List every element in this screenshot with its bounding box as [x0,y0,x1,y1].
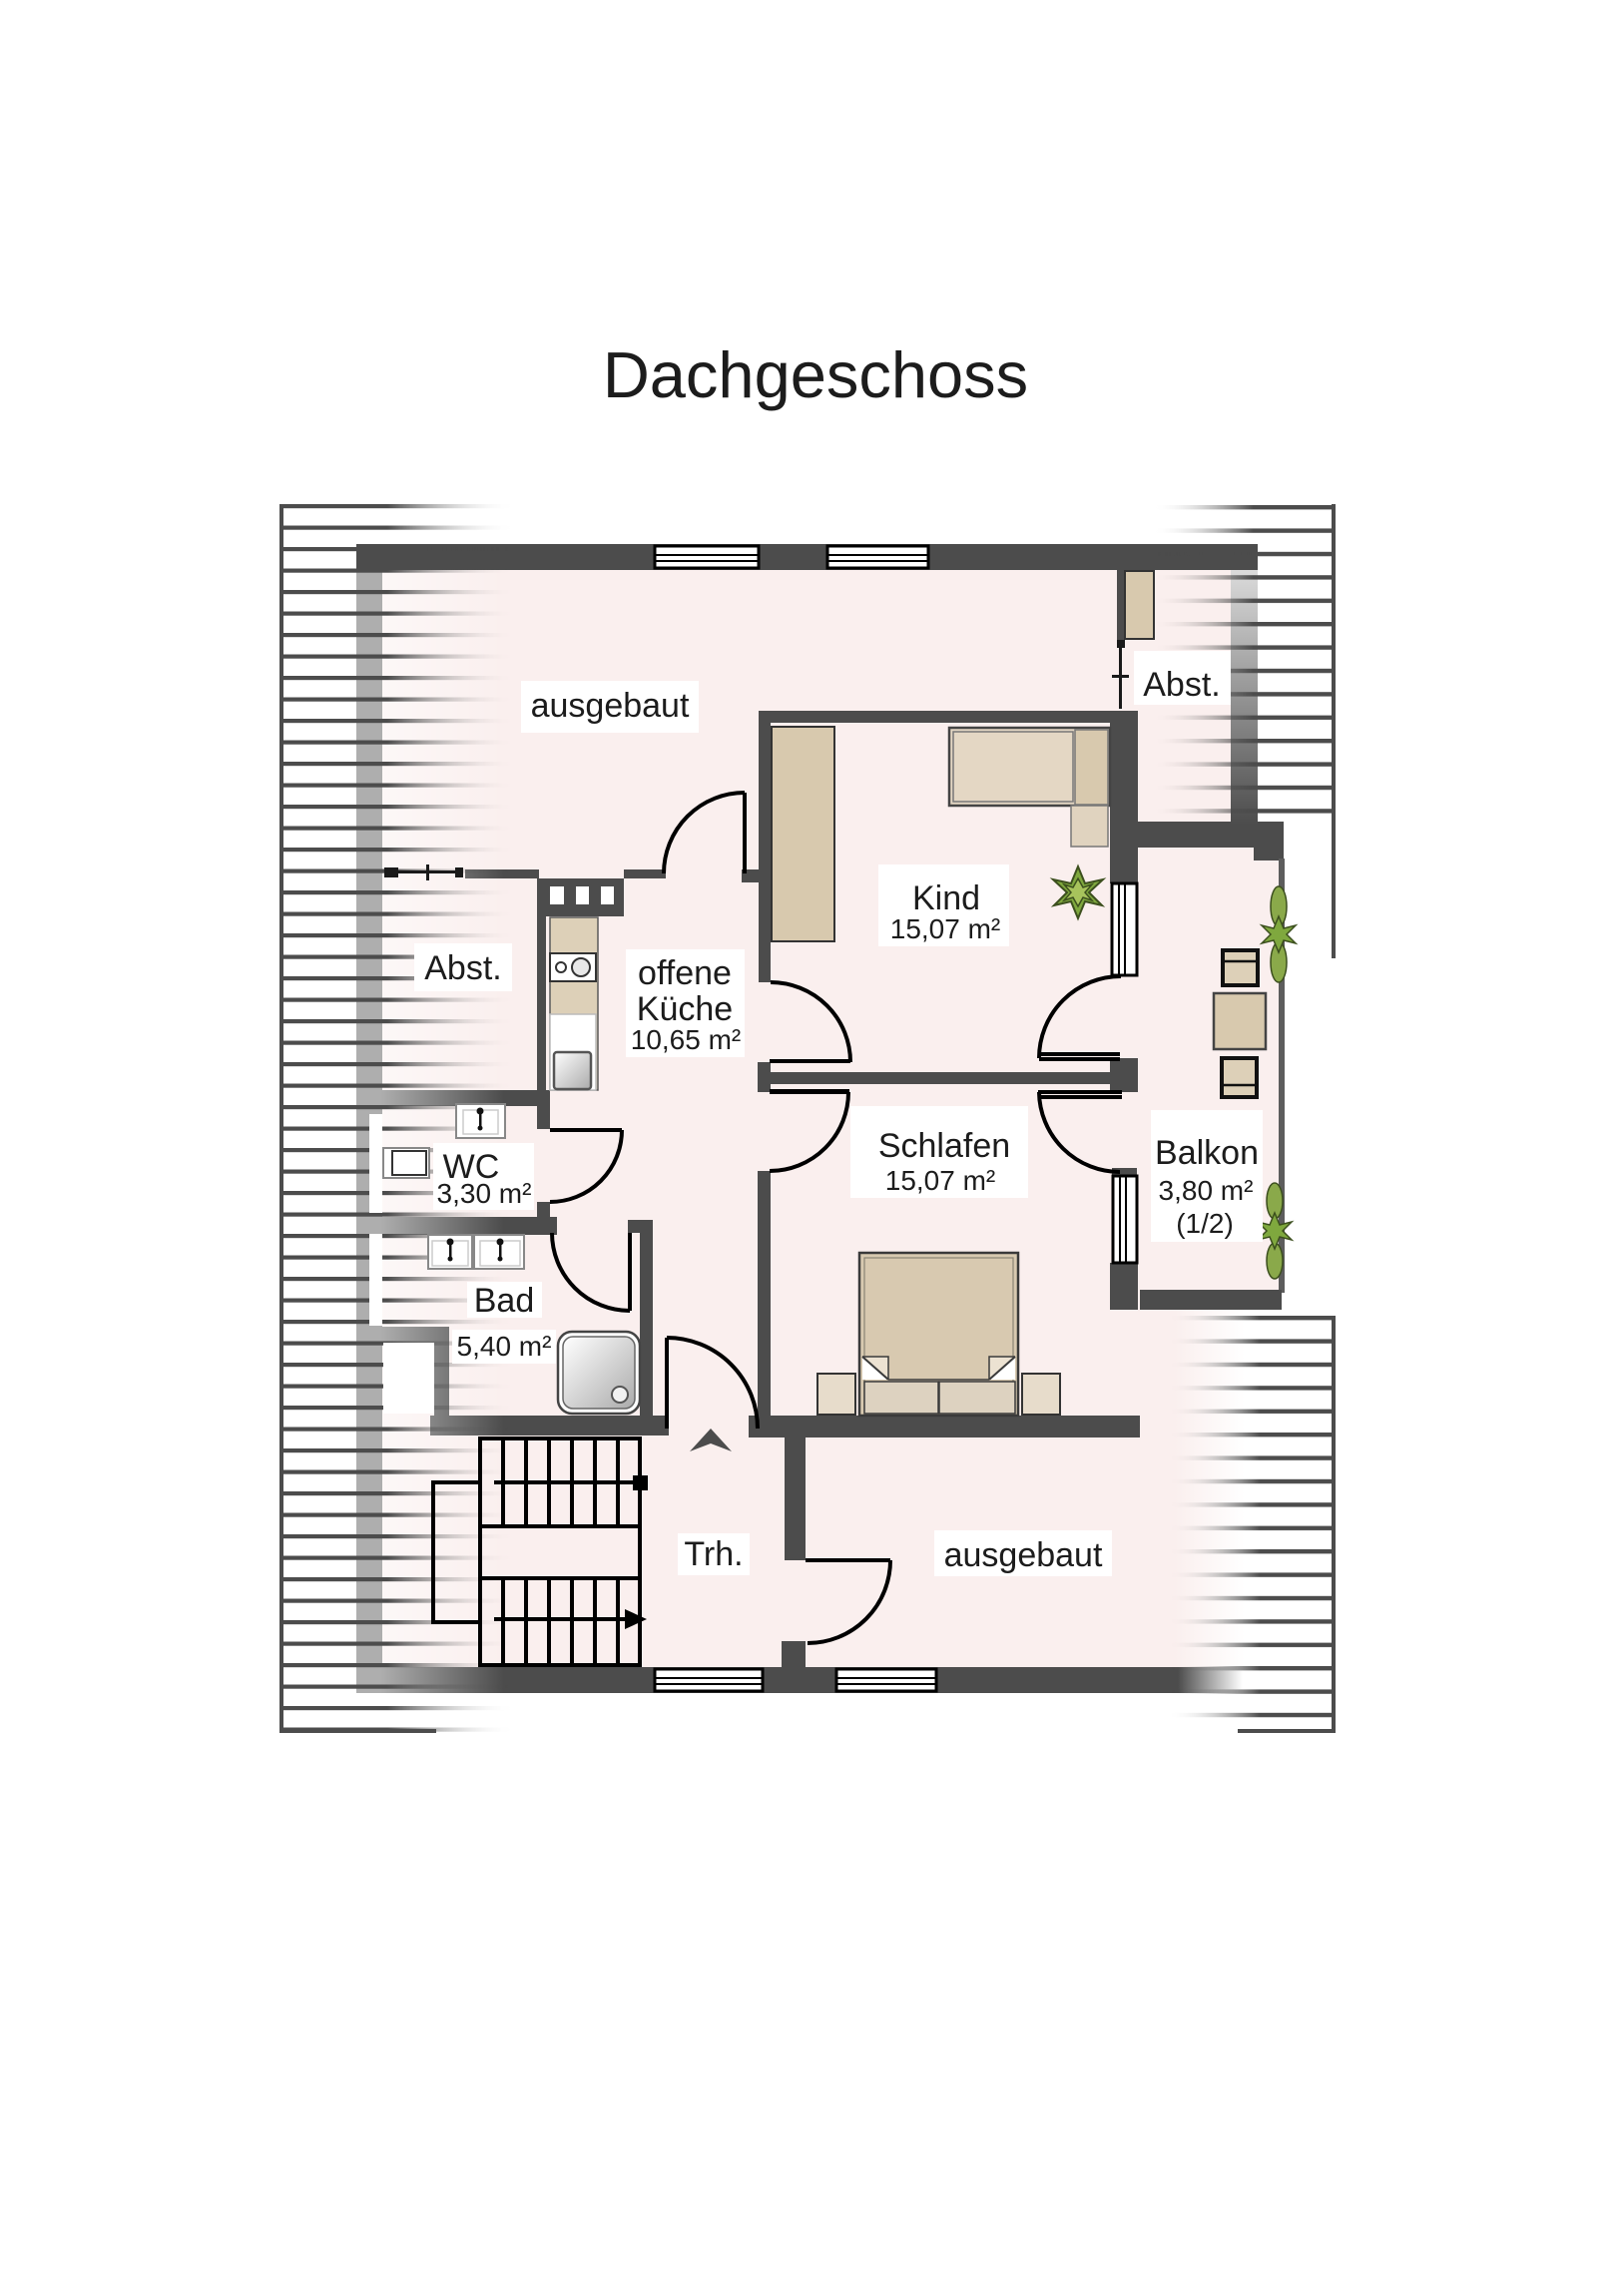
svg-text:15,07 m²: 15,07 m² [890,913,1001,944]
svg-text:Trh.: Trh. [684,1535,743,1573]
svg-text:ausgebaut: ausgebaut [531,687,690,725]
svg-text:Küche: Küche [637,990,733,1028]
svg-text:Bad: Bad [474,1282,535,1320]
svg-text:(1/2): (1/2) [1176,1208,1234,1239]
svg-text:Balkon: Balkon [1155,1134,1259,1172]
svg-text:Abst.: Abst. [1143,666,1220,704]
svg-text:Schlafen: Schlafen [878,1127,1010,1165]
svg-text:15,07 m²: 15,07 m² [885,1165,996,1196]
svg-text:5,40 m²: 5,40 m² [457,1331,552,1362]
svg-text:10,65 m²: 10,65 m² [631,1024,742,1055]
svg-text:ausgebaut: ausgebaut [944,1536,1103,1574]
svg-text:3,30 m²: 3,30 m² [437,1178,532,1209]
svg-text:offene: offene [638,954,732,992]
svg-text:Kind: Kind [912,879,980,917]
svg-text:Dachgeschoss: Dachgeschoss [603,338,1028,411]
svg-text:3,80 m²: 3,80 m² [1159,1175,1254,1206]
svg-text:Abst.: Abst. [424,949,501,987]
